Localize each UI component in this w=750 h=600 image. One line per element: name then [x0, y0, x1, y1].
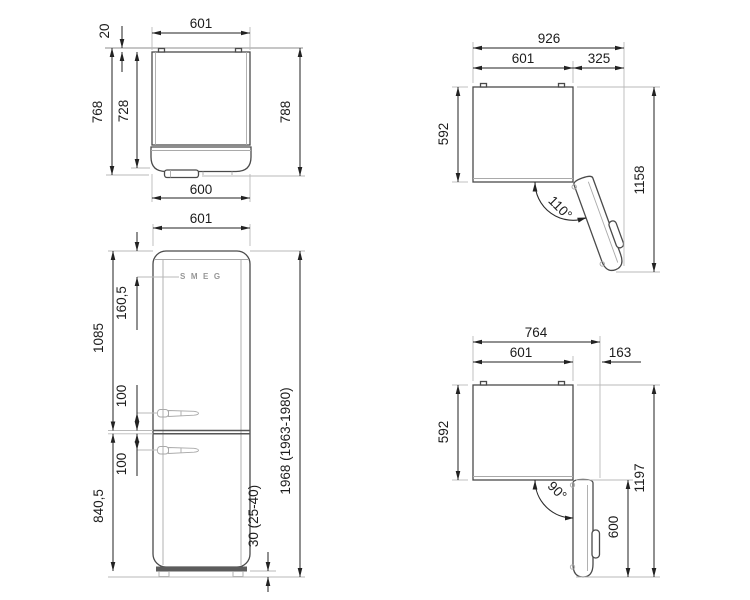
refrigerator-dimension-drawing: 601 20 768 728 788 600 SMEG [0, 0, 750, 600]
dim-upper-section: 1085 [91, 323, 106, 353]
hinge-mark-left [159, 49, 165, 53]
dim-wall-gap: 20 [97, 23, 112, 38]
dim-depth-body: 728 [116, 100, 131, 123]
view-top-open-110: 110° 926 601 325 592 1158 [436, 31, 660, 274]
dim-total-height: 1968 (1963-1980) [278, 387, 293, 494]
dim-feet-height: 30 (25-40) [246, 485, 261, 547]
dim-overall-depth-90: 1197 [632, 463, 647, 492]
cabinet-body-90 [473, 385, 573, 480]
dim-body-width-110: 601 [512, 51, 535, 66]
cabinet-body-top-view [152, 52, 250, 145]
view-top-closed: 601 20 768 728 788 600 [90, 16, 305, 202]
dim-overall-width-90: 764 [525, 325, 548, 340]
door-handle-top-view [165, 170, 199, 178]
dim-front-width: 601 [190, 211, 213, 226]
dim-lower-section: 840,5 [91, 489, 106, 523]
dim-body-depth-90: 592 [436, 421, 451, 444]
dim-body-depth-110: 592 [436, 123, 451, 146]
technical-drawing-canvas: 601 20 768 728 788 600 SMEG [0, 0, 750, 600]
dim-width-bottom: 600 [190, 182, 213, 197]
dim-logo-from-top: 160,5 [114, 286, 129, 320]
hinge-mark [481, 382, 487, 386]
dim-door-depth-90: 600 [606, 516, 621, 539]
hinge-mark [559, 84, 565, 88]
view-front: SMEG 601 160,5 1085 [91, 211, 305, 592]
hinge-mark [559, 382, 565, 386]
brand-logo: SMEG [180, 272, 226, 281]
dim-door-projection-90: 163 [609, 345, 632, 360]
cabinet-body-110 [473, 87, 573, 182]
dim-door-angle-110: 110° [545, 193, 575, 223]
dim-body-width-90: 601 [510, 345, 533, 360]
dim-depth-with-handle: 788 [278, 101, 293, 124]
dim-handle-offset-lower: 100 [114, 453, 129, 476]
dim-handle-offset-upper: 100 [114, 385, 129, 408]
view-top-open-90: 90° 764 601 163 592 1197 600 [436, 325, 660, 577]
foot-right [233, 572, 243, 577]
hinge-mark-right [236, 49, 242, 53]
dim-door-projection-110: 325 [588, 51, 611, 66]
door-open-90 [570, 479, 599, 577]
dim-depth-overall: 768 [90, 101, 105, 124]
dim-overall-depth-110: 1158 [632, 165, 647, 194]
foot-left [159, 572, 169, 577]
dim-overall-width-110: 926 [538, 31, 561, 46]
dim-door-angle-90: 90° [545, 478, 570, 503]
plinth [156, 567, 247, 572]
dim-width-top: 601 [190, 16, 213, 31]
fridge-front-outline [153, 251, 250, 567]
door-open-110 [570, 172, 631, 274]
hinge-mark [481, 84, 487, 88]
